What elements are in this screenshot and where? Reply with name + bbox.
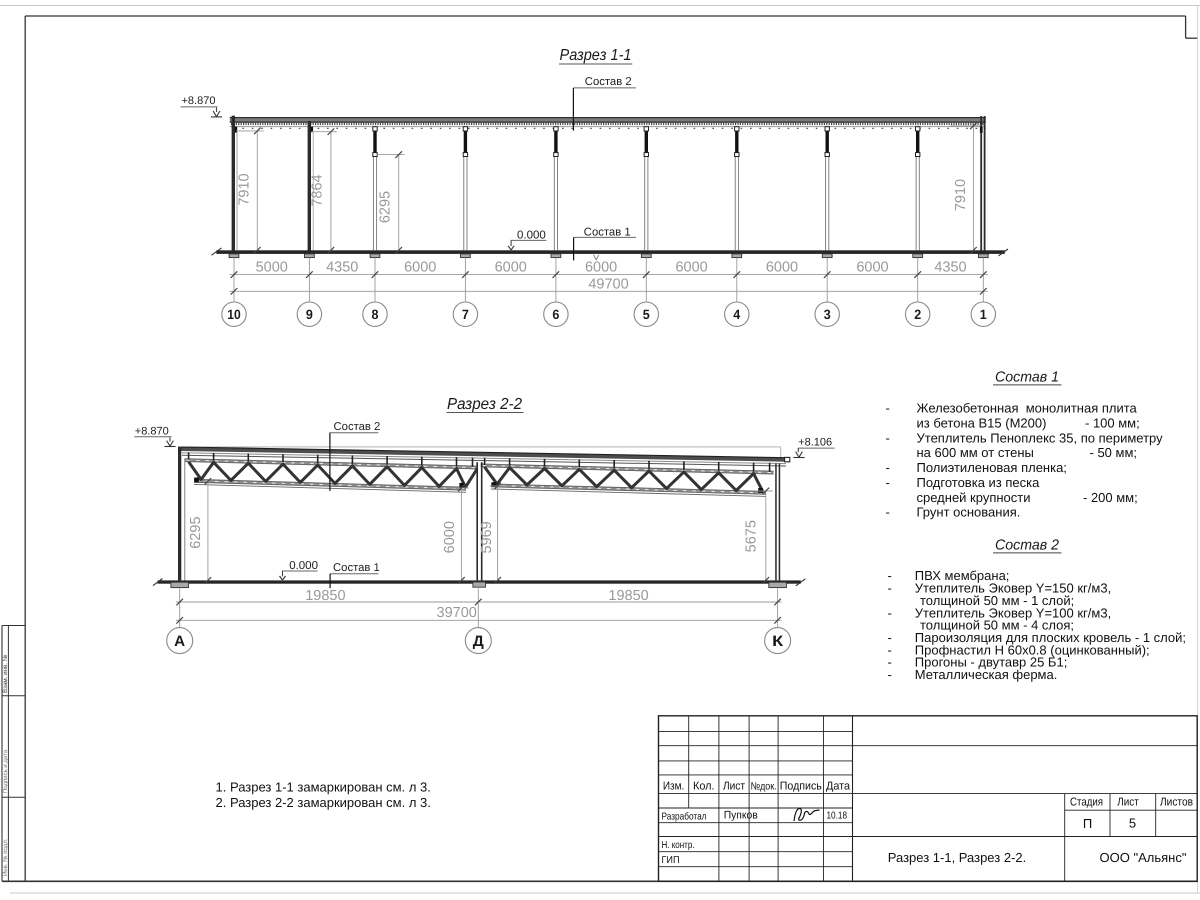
svg-text:6000: 6000 xyxy=(404,260,436,276)
svg-text:8: 8 xyxy=(372,307,379,322)
svg-text:А: А xyxy=(174,633,185,650)
svg-text:-: - xyxy=(886,460,890,475)
svg-text:7: 7 xyxy=(462,307,469,322)
svg-text:7864: 7864 xyxy=(310,174,326,206)
svg-text:№док.: №док. xyxy=(751,780,777,792)
svg-text:-: - xyxy=(886,401,890,416)
svg-text:Пупков: Пупков xyxy=(724,809,758,821)
svg-text:на 600 мм от стены: на 600 мм от стены xyxy=(917,445,1034,460)
svg-text:10: 10 xyxy=(227,307,241,322)
svg-text:-: - xyxy=(888,667,892,682)
svg-text:- 100 мм;: - 100 мм; xyxy=(1085,416,1140,431)
svg-text:Д: Д xyxy=(473,633,484,650)
svg-text:6295: 6295 xyxy=(188,516,204,548)
svg-text:Разрез 1-1: Разрез 1-1 xyxy=(560,47,632,64)
svg-text:К: К xyxy=(772,633,784,650)
svg-text:Лист: Лист xyxy=(1117,797,1139,809)
svg-text:Подпись: Подпись xyxy=(780,780,822,792)
svg-text:Лист: Лист xyxy=(723,780,746,792)
svg-text:10.18: 10.18 xyxy=(827,810,848,821)
svg-text:6000: 6000 xyxy=(675,260,707,276)
svg-text:6000: 6000 xyxy=(856,260,888,276)
svg-text:- 50 мм;: - 50 мм; xyxy=(1090,445,1138,460)
svg-text:19850: 19850 xyxy=(305,588,345,604)
svg-text:2. Разрез 2-2 замаркирован см.: 2. Разрез 2-2 замаркирован см. л 3. xyxy=(216,795,431,810)
svg-text:7910: 7910 xyxy=(236,173,252,205)
svg-text:Состав 1: Состав 1 xyxy=(584,227,631,239)
svg-text:+8.106: +8.106 xyxy=(798,436,832,448)
svg-text:Состав 2: Состав 2 xyxy=(995,538,1059,554)
svg-text:Состав 2: Состав 2 xyxy=(334,421,381,433)
svg-text:-: - xyxy=(886,475,890,490)
svg-text:4350: 4350 xyxy=(326,260,358,276)
svg-text:Утеплитель Пеноплекс 35, по пе: Утеплитель Пеноплекс 35, по периметру xyxy=(917,430,1164,445)
svg-text:- 200 мм;: - 200 мм; xyxy=(1083,490,1138,505)
svg-text:Подпись и дата: Подпись и дата xyxy=(2,749,9,793)
svg-text:0.000: 0.000 xyxy=(517,229,546,241)
svg-text:Разрез 1-1, Разрез 2-2.: Разрез 1-1, Разрез 2-2. xyxy=(888,850,1026,865)
svg-text:1: 1 xyxy=(980,307,987,322)
svg-text:Инв. № подл.: Инв. № подл. xyxy=(2,838,9,876)
svg-text:6000: 6000 xyxy=(495,260,527,276)
svg-text:Стадия: Стадия xyxy=(1070,797,1103,809)
svg-text:Состав 1: Состав 1 xyxy=(995,370,1059,386)
svg-text:Листов: Листов xyxy=(1160,796,1193,808)
svg-text:5969: 5969 xyxy=(479,521,495,553)
svg-text:6000: 6000 xyxy=(766,260,798,276)
svg-text:Металлическая ферма.: Металлическая ферма. xyxy=(915,667,1058,682)
svg-text:5: 5 xyxy=(643,307,650,322)
svg-text:Состав 2: Состав 2 xyxy=(585,76,632,88)
svg-text:-: - xyxy=(888,581,892,596)
svg-text:3: 3 xyxy=(824,307,831,322)
svg-text:5: 5 xyxy=(1129,816,1136,831)
svg-text:-: - xyxy=(888,605,892,620)
svg-text:6000: 6000 xyxy=(442,521,458,553)
svg-text:П: П xyxy=(1083,816,1092,831)
svg-text:1. Разрез 1-1 замаркирован см.: 1. Разрез 1-1 замаркирован см. л 3. xyxy=(216,779,431,794)
svg-text:Н. контр.: Н. контр. xyxy=(662,840,695,851)
svg-text:ГИП: ГИП xyxy=(662,855,680,866)
svg-text:0.000: 0.000 xyxy=(289,560,318,572)
svg-text:6295: 6295 xyxy=(377,191,393,223)
svg-text:49700: 49700 xyxy=(588,276,628,292)
svg-text:Кол.: Кол. xyxy=(693,780,715,792)
svg-text:Железобетонная монолитная пли: Железобетонная монолитная плита xyxy=(917,401,1138,416)
svg-text:4350: 4350 xyxy=(934,260,966,276)
svg-text:19850: 19850 xyxy=(608,588,648,604)
svg-text:6: 6 xyxy=(552,307,559,322)
svg-text:ООО "Альянс": ООО "Альянс" xyxy=(1100,850,1187,865)
svg-text:Разработал: Разработал xyxy=(662,811,707,822)
svg-text:Грунт основания.: Грунт основания. xyxy=(917,505,1021,520)
svg-text:5675: 5675 xyxy=(743,520,759,552)
svg-text:2: 2 xyxy=(914,307,921,322)
svg-text:+8.870: +8.870 xyxy=(182,95,216,107)
svg-text:9: 9 xyxy=(306,307,313,322)
svg-text:-: - xyxy=(886,505,890,520)
svg-text:Изм.: Изм. xyxy=(663,780,685,792)
svg-text:Взам. инв. №: Взам. инв. № xyxy=(2,654,9,693)
svg-text:4: 4 xyxy=(733,307,740,322)
svg-text:Дата: Дата xyxy=(826,780,851,792)
svg-text:+8.870: +8.870 xyxy=(135,426,169,438)
svg-text:Полиэтиленовая пленка;: Полиэтиленовая пленка; xyxy=(917,460,1067,475)
svg-text:7910: 7910 xyxy=(953,179,969,211)
svg-text:Подготовка из песка: Подготовка из песка xyxy=(917,475,1041,490)
svg-text:Состав 1: Состав 1 xyxy=(333,562,380,574)
svg-text:Разрез 2-2: Разрез 2-2 xyxy=(447,396,522,413)
svg-text:6000: 6000 xyxy=(585,260,617,276)
svg-text:39700: 39700 xyxy=(437,605,477,621)
svg-text:-: - xyxy=(886,430,890,445)
svg-text:средней крупности: средней крупности xyxy=(917,490,1031,505)
svg-text:5000: 5000 xyxy=(256,260,288,276)
svg-text:из бетона В15 (М200): из бетона В15 (М200) xyxy=(917,416,1047,431)
